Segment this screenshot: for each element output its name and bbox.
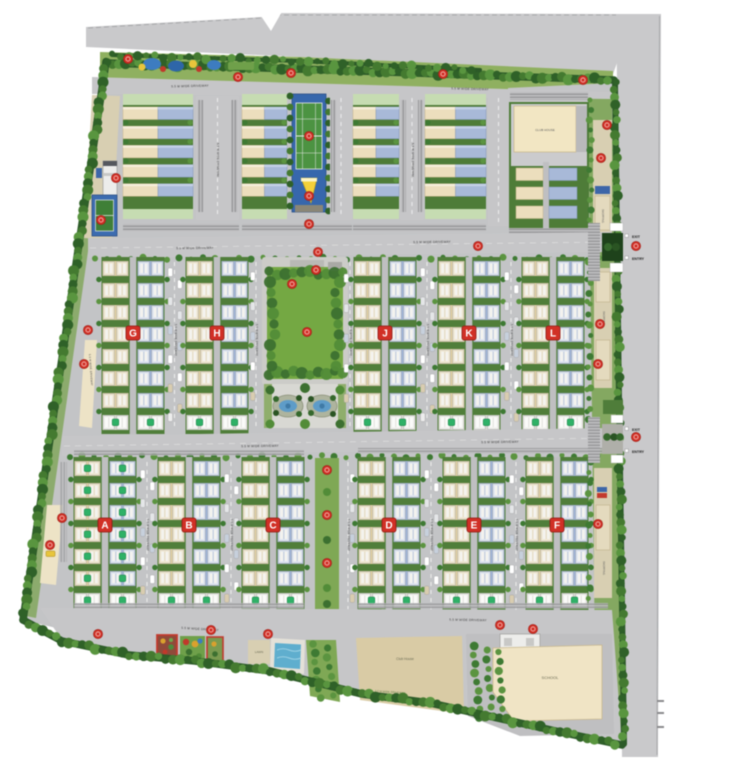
svg-text:5.5 M WIDE DRIVEWAY: 5.5 M WIDE DRIVEWAY [349, 324, 353, 356]
svg-text:EXIT: EXIT [632, 428, 641, 432]
svg-text:J: J [382, 328, 388, 339]
svg-text:G: G [129, 328, 137, 339]
svg-text:5.5 M WIDE DRIVEWAY: 5.5 M WIDE DRIVEWAY [426, 324, 430, 356]
svg-text:5.5 M WIDE DRIVEWAY: 5.5 M WIDE DRIVEWAY [481, 440, 519, 445]
svg-text:5.5 M WIDE DRIVEWAY: 5.5 M WIDE DRIVEWAY [255, 324, 259, 356]
svg-text:L: L [550, 328, 556, 339]
svg-text:CLUB HOUSE: CLUB HOUSE [535, 128, 555, 132]
svg-text:SHOPPING: SHOPPING [602, 561, 606, 575]
svg-text:5.5 M WIDE DRIVEWAY: 5.5 M WIDE DRIVEWAY [230, 519, 234, 551]
svg-text:5.5 M WIDE DRIVEWAY: 5.5 M WIDE DRIVEWAY [216, 143, 220, 177]
svg-text:5.5 M WIDE DRIVEWAY: 5.5 M WIDE DRIVEWAY [449, 618, 487, 623]
svg-text:5.5 M WIDE DRIVEWAY: 5.5 M WIDE DRIVEWAY [174, 324, 178, 356]
svg-text:5.5 M WIDE DRIVEWAY: 5.5 M WIDE DRIVEWAY [510, 324, 514, 356]
svg-text:5.5 M WIDE DRIVEWAY: 5.5 M WIDE DRIVEWAY [430, 519, 434, 551]
svg-text:ENTRY: ENTRY [632, 257, 645, 261]
svg-text:K: K [465, 328, 473, 339]
svg-text:5.5 M WIDE DRIVEWAY: 5.5 M WIDE DRIVEWAY [515, 519, 519, 551]
svg-text:5.5 M WIDE DRIVEWAY: 5.5 M WIDE DRIVEWAY [146, 519, 150, 551]
svg-text:5.5 M WIDE DRIVEWAY: 5.5 M WIDE DRIVEWAY [241, 444, 279, 449]
svg-text:C: C [269, 520, 276, 531]
svg-text:H: H [213, 328, 220, 339]
svg-text:E: E [471, 520, 478, 531]
svg-text:D: D [385, 520, 392, 531]
svg-text:F: F [554, 520, 560, 531]
svg-text:ENTRY: ENTRY [632, 450, 645, 454]
svg-text:Club House: Club House [396, 657, 414, 661]
svg-text:B: B [185, 520, 192, 531]
svg-text:LAWN: LAWN [255, 650, 264, 654]
svg-text:5.5 M WIDE DRIVEWAY: 5.5 M WIDE DRIVEWAY [411, 143, 415, 177]
svg-text:A: A [101, 520, 108, 531]
svg-text:EXIT: EXIT [632, 235, 641, 239]
svg-text:SHOPPING: SHOPPING [601, 209, 605, 223]
svg-text:SCHOOL: SCHOOL [542, 675, 560, 680]
